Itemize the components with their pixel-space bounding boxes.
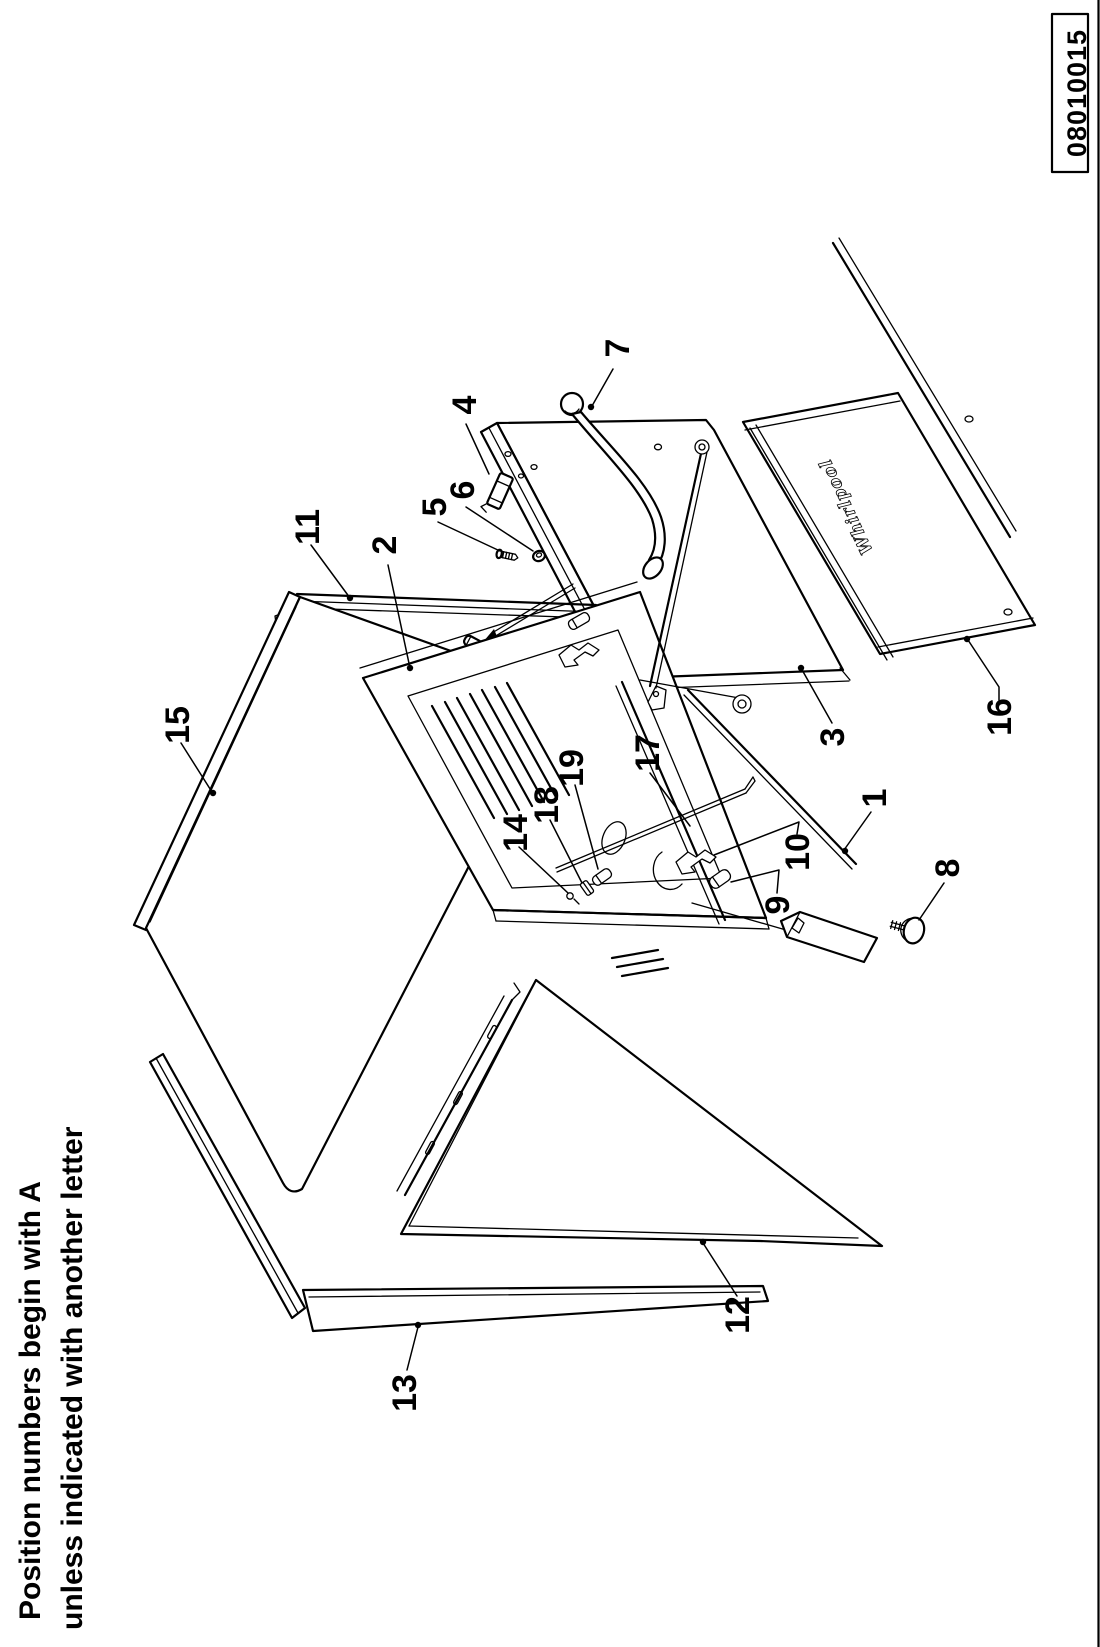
callout-number: 11: [289, 509, 327, 545]
manual-page: 08010015 Position numbers begin with A u…: [0, 0, 1100, 1647]
callout-number: 10: [779, 833, 817, 871]
part-12-outer-door-panel: [397, 980, 882, 1246]
callout-number: 19: [553, 749, 591, 787]
margin-note: Position numbers begin with A unless ind…: [14, 1126, 89, 1630]
tub-vent-slots: [612, 950, 668, 976]
exploded-parts-diagram: 08010015 Position numbers begin with A u…: [0, 0, 1100, 1647]
callout-number: 17: [629, 734, 667, 772]
part-number: 08010015: [1062, 29, 1092, 157]
callout-number: 16: [981, 698, 1019, 736]
part-4-door-latch: [480, 471, 514, 517]
callout-number: 4: [446, 395, 484, 414]
callout-number: 13: [386, 1374, 424, 1412]
callout-number: 18: [528, 786, 566, 824]
callout-number: 1: [856, 789, 894, 808]
callout-number: 8: [929, 859, 967, 878]
callout-16: 16: [964, 636, 1019, 736]
callout-number: 7: [599, 339, 637, 358]
callout-number: 2: [366, 536, 404, 555]
frame-corner-post: [781, 912, 877, 962]
callout-number: 12: [719, 1296, 757, 1334]
part-number-box: 08010015: [1052, 14, 1092, 172]
callout-number: 6: [444, 481, 482, 500]
margin-note-line1: Position numbers begin with A: [14, 1181, 47, 1620]
callout-13: 13: [386, 1322, 424, 1412]
margin-note-line2: unless indicated with another letter: [56, 1126, 89, 1630]
callout-5: 5: [416, 498, 500, 551]
callout-3: 3: [798, 665, 852, 747]
callout-11: 11: [289, 509, 353, 601]
callout-number: 9: [759, 896, 797, 915]
callout-number: 3: [814, 728, 852, 747]
callout-8: 8: [919, 859, 967, 920]
callout-7: 7: [588, 339, 637, 411]
callout-number: 15: [159, 706, 197, 744]
callout-1: 1: [842, 789, 894, 855]
